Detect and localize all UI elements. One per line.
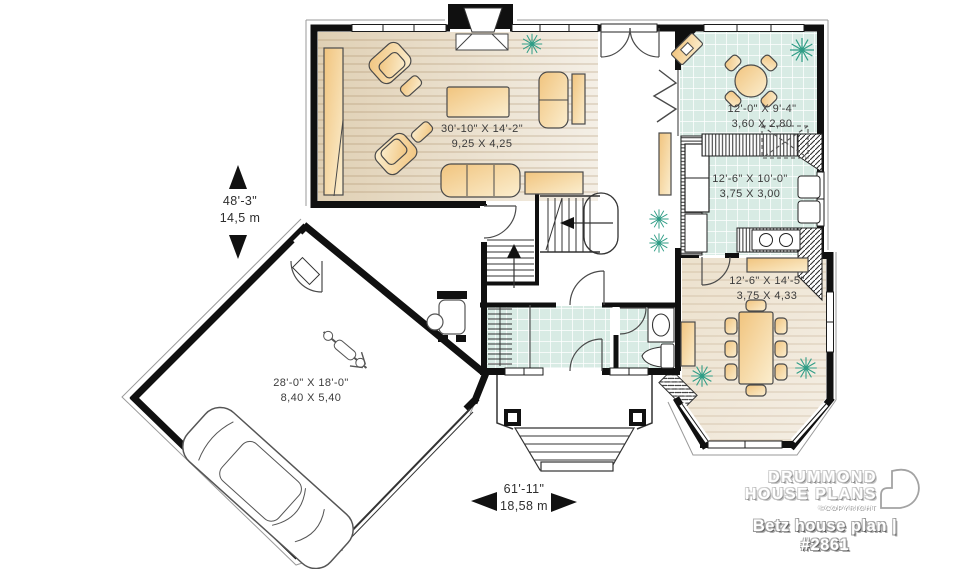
dining-room-label: 12'-6" X 14'-5" 3,75 X 4,33: [729, 274, 805, 304]
height-metric: 14,5 m: [220, 210, 261, 227]
living-room-metric: 9,25 X 4,25: [441, 137, 523, 152]
height-imperial: 48'-3": [220, 193, 261, 210]
garage-imperial: 28'-0" X 18'-0": [273, 376, 349, 391]
plan-title: Betz house plan | #2861: [731, 517, 919, 555]
plant-icon: [649, 209, 668, 228]
kitchen-imperial: 12'-6" X 10'-0": [712, 172, 788, 187]
width-metric: 18,58 m: [500, 498, 548, 515]
dining-imperial: 12'-6" X 14'-5": [729, 274, 805, 289]
buffet: [681, 322, 695, 366]
chair: [775, 318, 787, 334]
buffet: [747, 258, 808, 272]
dim-arrow-up: [229, 165, 247, 189]
wall-oven: [798, 201, 820, 223]
sofa: [441, 164, 520, 197]
width-dimension: 61'-11" 18,58 m: [500, 481, 548, 515]
media-cabinet: [324, 48, 343, 195]
plant-icon: [649, 233, 668, 252]
nook-metric: 3,60 X 2,80: [728, 117, 797, 132]
accordion-partition: [654, 70, 676, 122]
chair: [775, 341, 787, 357]
kitchen-label: 12'-6" X 10'-0" 3,75 X 3,00: [712, 172, 788, 202]
coffee-table: [447, 87, 509, 117]
width-imperial: 61'-11": [500, 481, 548, 498]
living-room-imperial: 30'-10" X 14'-2": [441, 122, 523, 137]
chair: [725, 364, 737, 380]
dim-arrow-down: [229, 235, 247, 259]
staircase: [487, 193, 618, 288]
burner: [780, 234, 793, 247]
kitchen-cabinet: [685, 214, 707, 252]
chair: [725, 318, 737, 334]
brand-line2: HOUSE PLANS: [745, 486, 877, 503]
nook-imperial: 12'-0" X 9'-4": [728, 102, 797, 117]
foyer-hall-door: [570, 271, 604, 305]
floor-plan-page: 30'-10" X 14'-2" 9,25 X 4,25 12'-0" X 9'…: [0, 0, 960, 569]
console-table: [572, 74, 585, 124]
garage-label: 28'-0" X 18'-0" 8,40 X 5,40: [273, 376, 349, 406]
hall-buffet: [659, 133, 671, 195]
dining-table: [739, 312, 773, 384]
dim-arrow-right: [551, 493, 577, 512]
wall-oven: [798, 176, 820, 198]
brand-logo: DRUMMOND HOUSE PLANS ©COPYRIGHT: [745, 469, 877, 513]
brand-copyright: ©COPYRIGHT: [745, 504, 877, 513]
living-hall-door: [484, 206, 516, 238]
burner: [760, 234, 773, 247]
toilet-tank: [661, 344, 674, 368]
brand-line1: DRUMMOND: [745, 469, 877, 486]
dining-metric: 3,75 X 4,33: [729, 289, 805, 304]
sofa-table: [525, 172, 583, 194]
garage-metric: 8,40 X 5,40: [273, 391, 349, 406]
chair: [746, 385, 766, 396]
dim-arrow-left: [471, 492, 497, 511]
front-porch: [497, 370, 697, 471]
living-room-label: 30'-10" X 14'-2" 9,25 X 4,25: [441, 122, 523, 152]
kitchen-metric: 3,75 X 3,00: [712, 187, 788, 202]
chair: [775, 364, 787, 380]
chair: [725, 341, 737, 357]
round-table: [735, 65, 767, 97]
kitchen-counter-top: [702, 134, 798, 156]
drummond-d-icon: [878, 464, 922, 512]
vanity: [648, 308, 674, 342]
height-dimension: 48'-3" 14,5 m: [220, 193, 261, 227]
breakfast-nook-label: 12'-0" X 9'-4" 3,60 X 2,80: [728, 102, 797, 132]
